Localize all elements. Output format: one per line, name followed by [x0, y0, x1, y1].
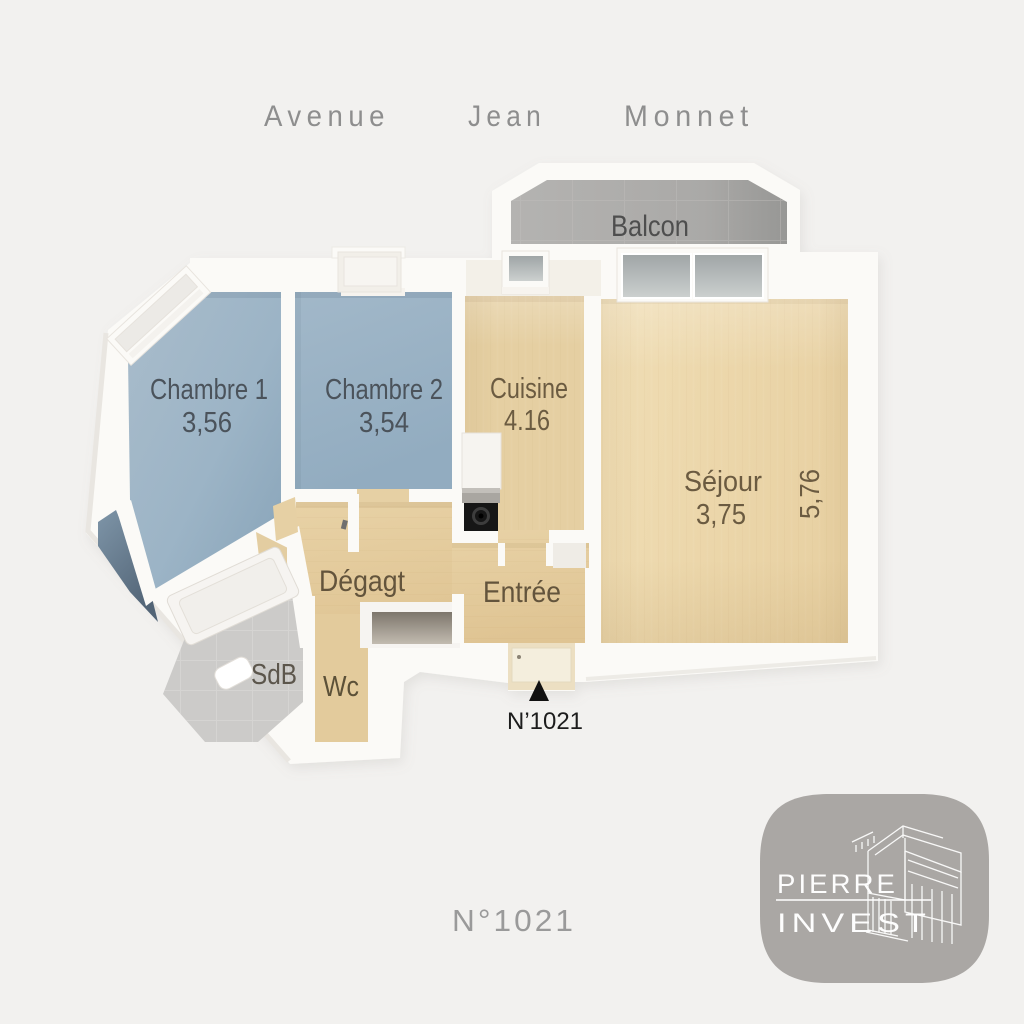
svg-text:Chambre 2: Chambre 2 [325, 374, 443, 406]
svg-text:3,75: 3,75 [696, 499, 746, 531]
svg-text:Chambre 1: Chambre 1 [150, 374, 268, 406]
svg-text:Wc: Wc [323, 671, 359, 703]
svg-text:Dégagt: Dégagt [319, 565, 406, 598]
svg-text:5,76: 5,76 [794, 469, 825, 519]
svg-text:Monnet: Monnet [624, 100, 754, 133]
svg-text:3,56: 3,56 [182, 407, 232, 439]
svg-text:N’1021: N’1021 [507, 708, 583, 735]
svg-text:Entrée: Entrée [483, 576, 561, 609]
svg-text:4.16: 4.16 [504, 405, 550, 437]
svg-text:N°1021: N°1021 [452, 903, 576, 938]
svg-text:Balcon: Balcon [611, 210, 689, 243]
svg-text:3,54: 3,54 [359, 407, 409, 439]
svg-text:Cuisine: Cuisine [490, 373, 568, 405]
svg-text:Avenue: Avenue [264, 100, 390, 133]
svg-text:SdB: SdB [251, 659, 297, 691]
svg-text:Jean: Jean [468, 100, 546, 133]
svg-text:PIERRE: PIERRE [777, 869, 898, 899]
svg-text:Séjour: Séjour [684, 466, 762, 498]
